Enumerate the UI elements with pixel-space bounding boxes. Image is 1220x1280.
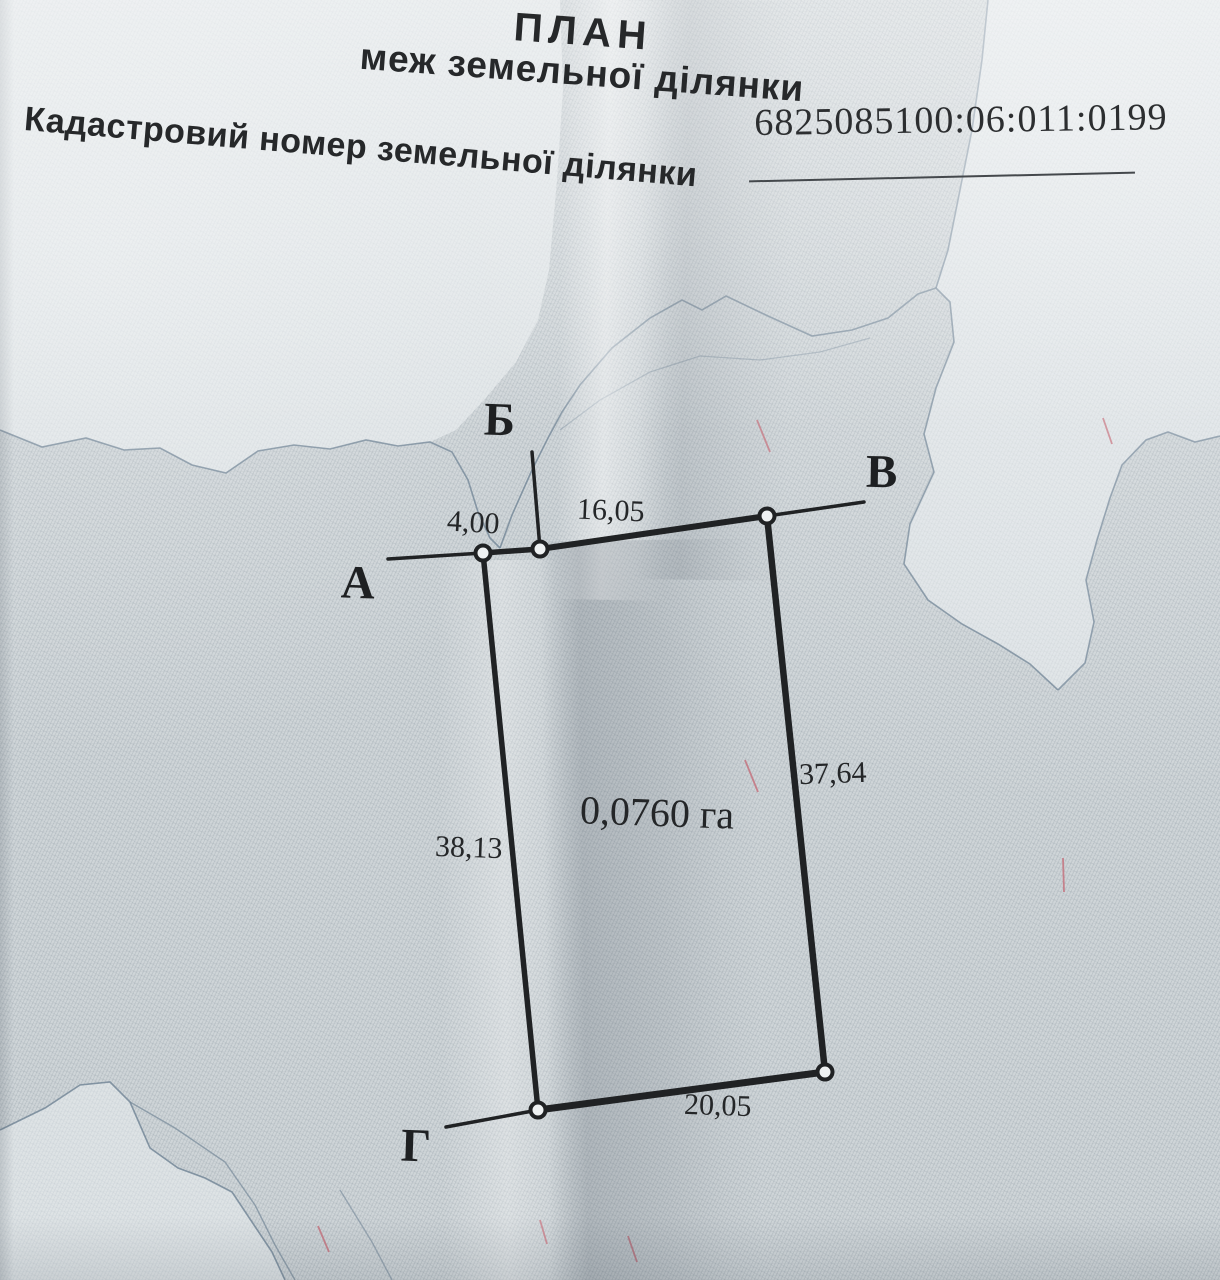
photo-lighting-overlay [0,0,1220,1280]
boundary-side-b-v [540,516,767,549]
vertex-marker-g [531,1103,546,1118]
vertex-marker-b [533,542,548,557]
vertex-label-a: А [340,555,376,610]
cadastral-number-underline [749,172,1135,183]
vertex-label-b: Б [483,392,516,447]
light-region-bottom-left [0,1082,285,1280]
plot-area-label: 0,0760 га [579,786,735,838]
extension-line-below-g [446,1110,538,1127]
coastline-bottom-left-detail [340,1190,392,1280]
vertex-label-g: Г [400,1118,432,1173]
extension-line-right-of-v [767,502,864,516]
extension-line-above-b [532,452,540,549]
coastline-right-upper [936,0,988,288]
cadastral-number-label: Кадастровий номер земельної ділянки [23,100,699,195]
boundary-side-v-d [767,516,825,1072]
length-label-left-side: 38,13 [434,830,503,866]
coastline-island-inner-detail [560,338,870,430]
length-label-a-b: 4,00 [446,504,500,541]
length-label-right-side: 37,64 [798,756,867,792]
length-label-bottom-side: 20,05 [683,1088,752,1124]
length-label-b-v: 16,05 [576,493,645,530]
paper-fold-shadow-bottom [540,539,766,1280]
paper-fold-highlight-bottom [436,559,574,1280]
coastline-left [0,430,500,548]
security-pattern-decoration [0,0,1220,1280]
coastline-bottom-left-outer [0,1082,285,1280]
vertex-marker-a [476,546,491,561]
coastline-bottom-left-inner [130,1102,295,1280]
boundary-side-a-b [483,549,540,553]
coastline-right-lower [1058,432,1220,690]
scanned-document-page: ПЛАН меж земельної ділянки Кадастровий н… [0,0,1220,1280]
plot-boundary-drawing [0,0,1220,1280]
coastline-island [500,288,1058,690]
cadastral-number-value: 6825085100:06:011:0199 [754,95,1168,145]
boundary-side-d-g [538,1072,825,1110]
vertex-marker-v [760,509,775,524]
extension-line-left-of-a [388,553,483,559]
vertex-marker-bottom-right [818,1065,833,1080]
vertex-label-v: В [866,445,898,500]
